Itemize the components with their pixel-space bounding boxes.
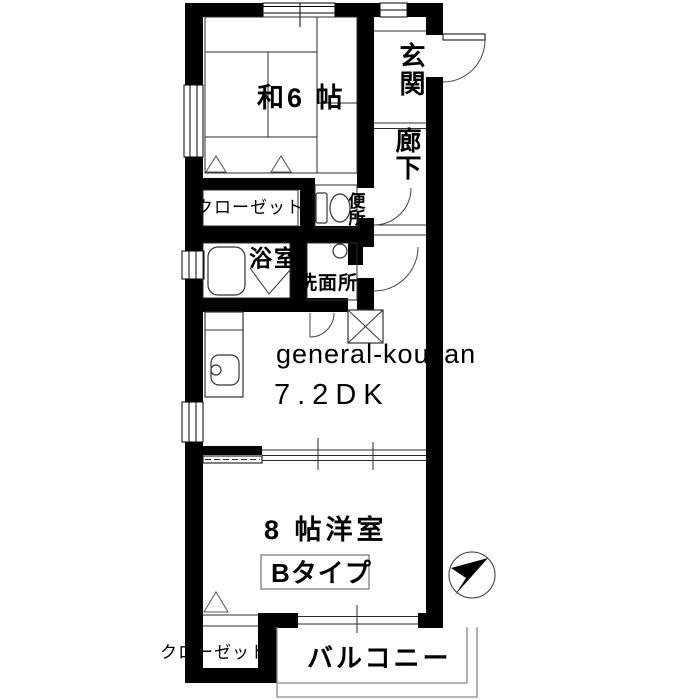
window-double-line-icon: [184, 85, 203, 157]
window-double-line-icon: [182, 402, 203, 442]
dk-door: [310, 313, 334, 337]
room-label-hallway: 廊下: [392, 126, 422, 181]
folding-door-icon: [250, 268, 291, 294]
wall-segment: [357, 17, 374, 188]
unit-type-label: Bタイプ: [271, 558, 372, 588]
window-double-line-icon: [263, 3, 335, 27]
wall-segment: [357, 278, 374, 313]
entrance-door: [443, 34, 485, 82]
balcony-sliding-door: [298, 605, 418, 633]
window-double-line-icon: [182, 251, 204, 279]
closet-opening: [203, 615, 258, 626]
unit-type-badge: Bタイプ: [261, 555, 372, 589]
wall-segment: [426, 3, 443, 35]
washbasin-icon: [333, 244, 347, 258]
room-label-dining-kitchen: 7.2DK: [274, 379, 390, 411]
wall-segment: [348, 243, 363, 265]
compass-north-arrow-icon: [449, 552, 495, 598]
wall-segment: [418, 613, 443, 628]
door-swing-arc-icon: [310, 313, 334, 337]
wall-segment: [185, 226, 373, 243]
wall-segment: [335, 3, 380, 17]
wall-segment: [185, 3, 203, 85]
room-label-closet-upper: クローゼット: [196, 198, 304, 217]
door-marker-triangle-icon: [206, 156, 226, 172]
door-swing-arc-icon: [374, 247, 418, 291]
window-double-line-icon: [380, 3, 407, 17]
door-marker-triangle-icon: [271, 156, 291, 172]
floor-plan-drawing: general-kousan 和6 帖 玄関 廊下 クローゼット 便所 浴室 洗…: [0, 0, 700, 700]
door-swing-arc-icon: [443, 40, 485, 82]
door-swing-arc-icon: [374, 188, 411, 225]
room-label-entrance: 玄関: [396, 41, 426, 98]
room-label-japanese-room: 和6 帖: [257, 83, 346, 113]
floor-plan-canvas: general-kousan 和6 帖 玄関 廊下 クローゼット 便所 浴室 洗…: [0, 0, 700, 700]
room-label-toilet: 便所: [346, 191, 366, 227]
watermark: general-kousan: [276, 339, 476, 369]
wall-segment: [198, 446, 262, 455]
kitchen-sink-icon: [205, 312, 243, 397]
room-label-western-room: 8 帖洋室: [264, 514, 388, 545]
wall-segment: [185, 178, 302, 190]
wall-segment: [203, 3, 263, 17]
door-marker-triangle-icon: [204, 592, 228, 612]
wall-segment: [185, 279, 203, 402]
room-label-closet-lower: クローゼット: [160, 643, 268, 662]
room-label-balcony: バルコニー: [307, 643, 451, 673]
room-label-washroom: 洗面所: [298, 271, 358, 294]
room-label-bathroom: 浴室: [249, 245, 299, 271]
wall-segment: [185, 668, 277, 683]
